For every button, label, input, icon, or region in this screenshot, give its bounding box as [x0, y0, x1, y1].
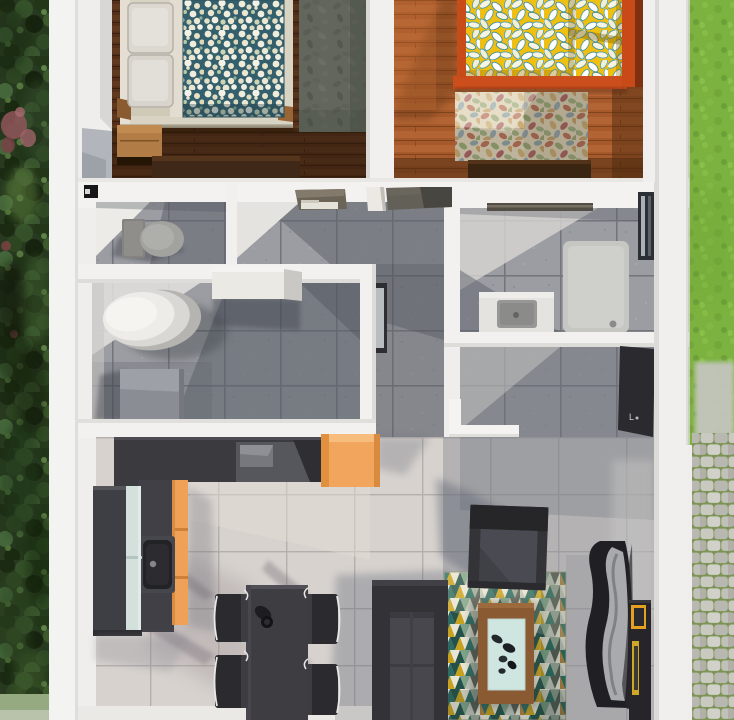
svg-text:L: L [629, 412, 634, 422]
